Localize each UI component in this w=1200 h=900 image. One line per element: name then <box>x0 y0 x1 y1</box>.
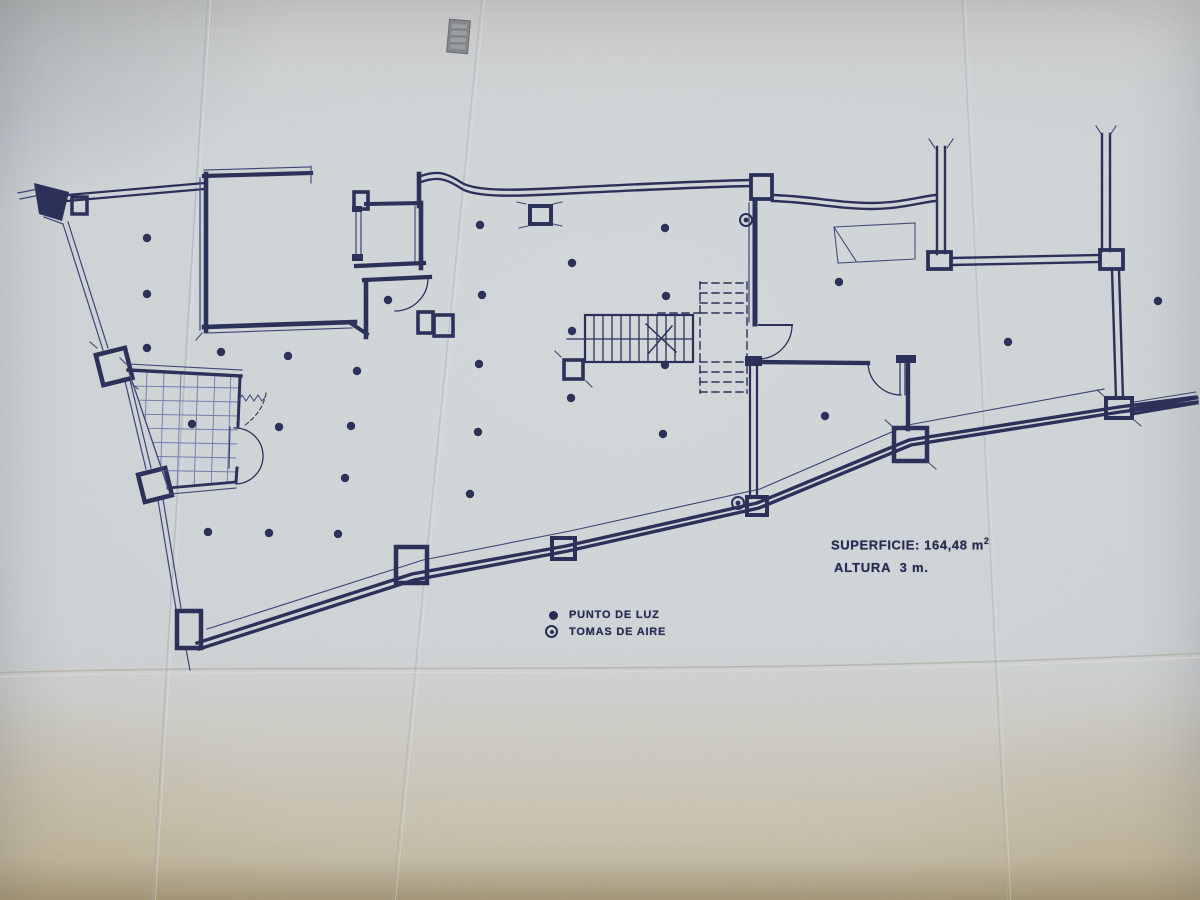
floor-plan-drawing <box>0 0 1200 900</box>
superficie-exponent: 2 <box>984 536 990 546</box>
light-point-icon <box>549 611 558 620</box>
blueprint-photo: SUPERFICIE: 164,48 m2 ALTURA 3 m. PUNTO … <box>0 0 1200 900</box>
paper-grain-texture <box>0 0 1200 900</box>
legend-item-air-intake: TOMAS DE AIRE <box>545 625 666 638</box>
legend-item-light-point: PUNTO DE LUZ <box>549 609 660 621</box>
legend-label: PUNTO DE LUZ <box>569 609 660 621</box>
air-intake-icon <box>545 625 558 638</box>
legend-label: TOMAS DE AIRE <box>569 626 666 638</box>
superficie-label: SUPERFICIE: <box>831 537 920 552</box>
height-annotation: ALTURA 3 m. <box>834 560 929 575</box>
superficie-value: 164,48 m <box>920 537 984 552</box>
area-annotation: SUPERFICIE: 164,48 m2 <box>831 536 990 552</box>
